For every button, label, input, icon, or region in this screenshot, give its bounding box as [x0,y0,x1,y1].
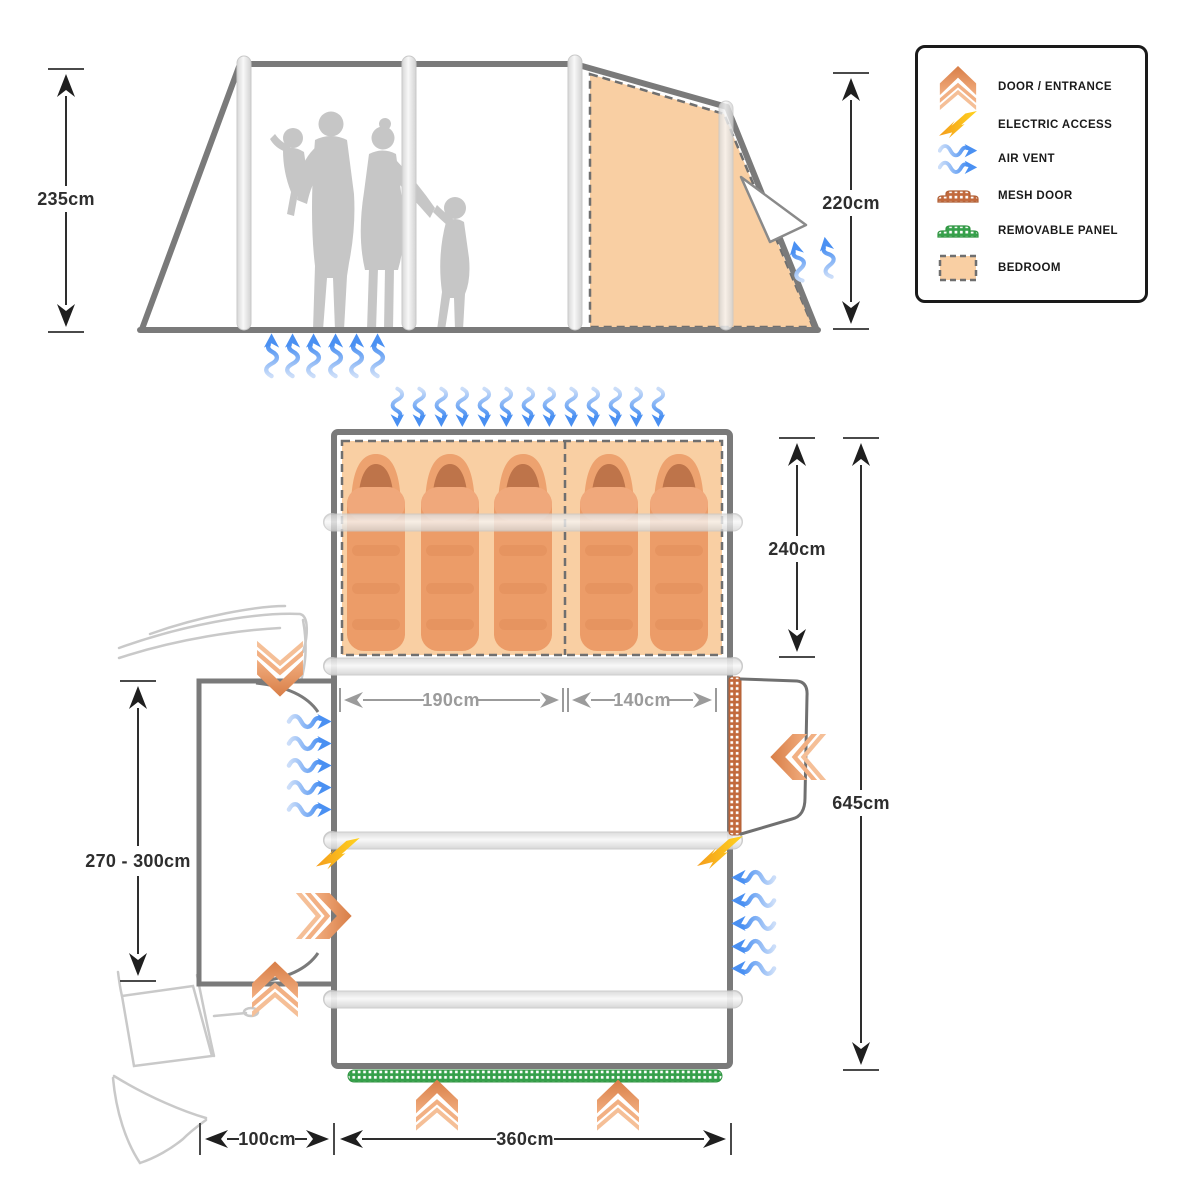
floor-plan-view [113,389,826,1163]
side-height-label: 235cm [37,189,95,209]
right-side-air-vents [731,870,774,976]
plan-air-pole-2 [324,658,743,676]
bedroom-right-label: 140cm [613,690,671,710]
dim-tunnel-length: 270 - 300cm [85,681,190,981]
plan-air-pole-3 [324,832,743,850]
electric-access-icon [930,111,986,139]
legend-item-door-entrance: DOOR / ENTRANCE [930,70,1139,104]
bedroom-icon [930,254,986,282]
bedroom-air-vents [391,389,666,427]
legend-label: AIR VENT [998,153,1055,165]
tunnel-width-label: 100cm [238,1129,296,1149]
connecting-tunnel [199,681,334,984]
side-underfloor-air-vents [264,333,385,376]
legend-item-mesh-door: MESH DOOR [930,179,1139,213]
mesh-door-icon [930,189,986,204]
bedroom-depth-label: 240cm [768,539,826,559]
mesh-door [729,677,741,835]
tent-dimensions-infographic: 235cm 220cm 240cm [0,0,1200,1200]
dim-main-width: 360cm [340,1123,731,1155]
air-vent-icon [930,142,986,176]
door-entrance-icon [930,64,986,110]
side-bedroom-panel [590,74,813,327]
rear-height-label: 220cm [822,193,880,213]
removable-panel-strip [348,1070,722,1082]
legend-label: ELECTRIC ACCESS [998,119,1112,131]
legend-item-air-vent: AIR VENT [930,142,1139,176]
rear-air-vents [787,236,839,282]
removable-panel-icon [930,224,986,239]
plan-air-pole-1 [324,514,743,532]
bedroom-left-label: 190cm [422,690,480,710]
dim-total-length: 645cm [832,438,890,1070]
dim-rear-height: 220cm [822,73,880,329]
legend-label: MESH DOOR [998,190,1073,202]
legend-item-removable-panel: REMOVABLE PANEL [930,214,1139,248]
dim-side-height: 235cm [37,69,95,332]
plan-air-pole-4 [324,991,743,1009]
legend-label: BEDROOM [998,262,1061,274]
total-length-label: 645cm [832,793,890,813]
side-elevation-view [140,55,839,376]
main-width-label: 360cm [496,1129,554,1149]
legend-item-electric-access: ELECTRIC ACCESS [930,108,1139,142]
legend-box: DOOR / ENTRANCE ELECTRIC ACCESS AIR VENT… [915,45,1148,303]
tunnel-length-label: 270 - 300cm [85,851,190,871]
family-silhouette [270,112,470,331]
dim-bedroom-depth: 240cm [768,438,826,657]
legend-label: DOOR / ENTRANCE [998,81,1112,93]
legend-label: REMOVABLE PANEL [998,225,1118,237]
legend-item-bedroom: BEDROOM [930,251,1139,285]
dim-tunnel-width: 100cm [200,1123,334,1155]
